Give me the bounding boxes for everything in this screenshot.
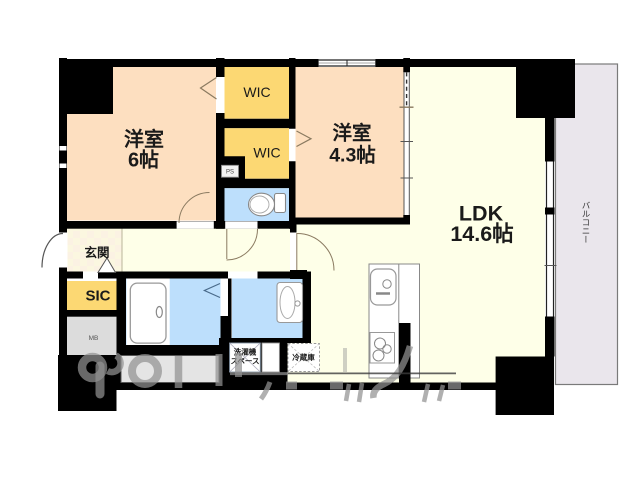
svg-text:SIC: SIC bbox=[85, 288, 110, 305]
svg-text:冷蔵庫: 冷蔵庫 bbox=[292, 352, 315, 362]
svg-text:バルコニー: バルコニー bbox=[581, 201, 591, 244]
svg-text:MB: MB bbox=[89, 335, 99, 342]
svg-text:スペース: スペース bbox=[230, 357, 259, 366]
svg-text:WIC: WIC bbox=[243, 84, 270, 100]
svg-text:PS: PS bbox=[226, 170, 234, 176]
svg-text:4.3帖: 4.3帖 bbox=[329, 144, 376, 167]
svg-text:洋室: 洋室 bbox=[124, 127, 164, 151]
svg-text:洋室: 洋室 bbox=[332, 122, 371, 145]
svg-text:6帖: 6帖 bbox=[128, 149, 159, 172]
svg-text:玄関: 玄関 bbox=[84, 245, 109, 260]
svg-text:WIC: WIC bbox=[253, 145, 280, 161]
svg-text:14.6帖: 14.6帖 bbox=[450, 222, 513, 246]
